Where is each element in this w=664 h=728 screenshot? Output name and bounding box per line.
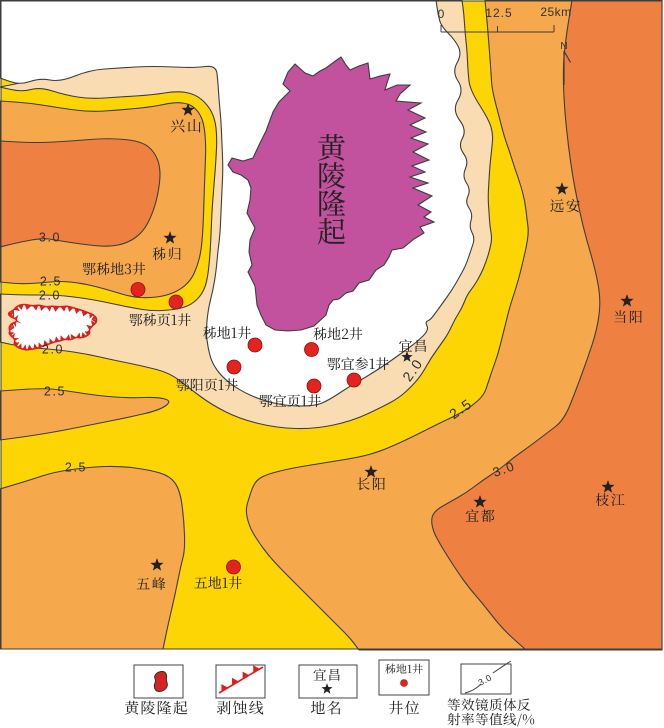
svg-text:N: N	[560, 41, 567, 52]
svg-text:12.5: 12.5	[485, 6, 512, 20]
svg-text:2.0: 2.0	[39, 289, 61, 303]
svg-text:2.5: 2.5	[65, 461, 87, 475]
svg-text:2.5: 2.5	[44, 385, 66, 399]
svg-text:2.5: 2.5	[40, 275, 62, 289]
svg-text:2.0: 2.0	[42, 343, 64, 357]
svg-text:0: 0	[438, 7, 445, 21]
svg-text:25km: 25km	[540, 5, 571, 19]
svg-text:3.0: 3.0	[39, 231, 61, 245]
